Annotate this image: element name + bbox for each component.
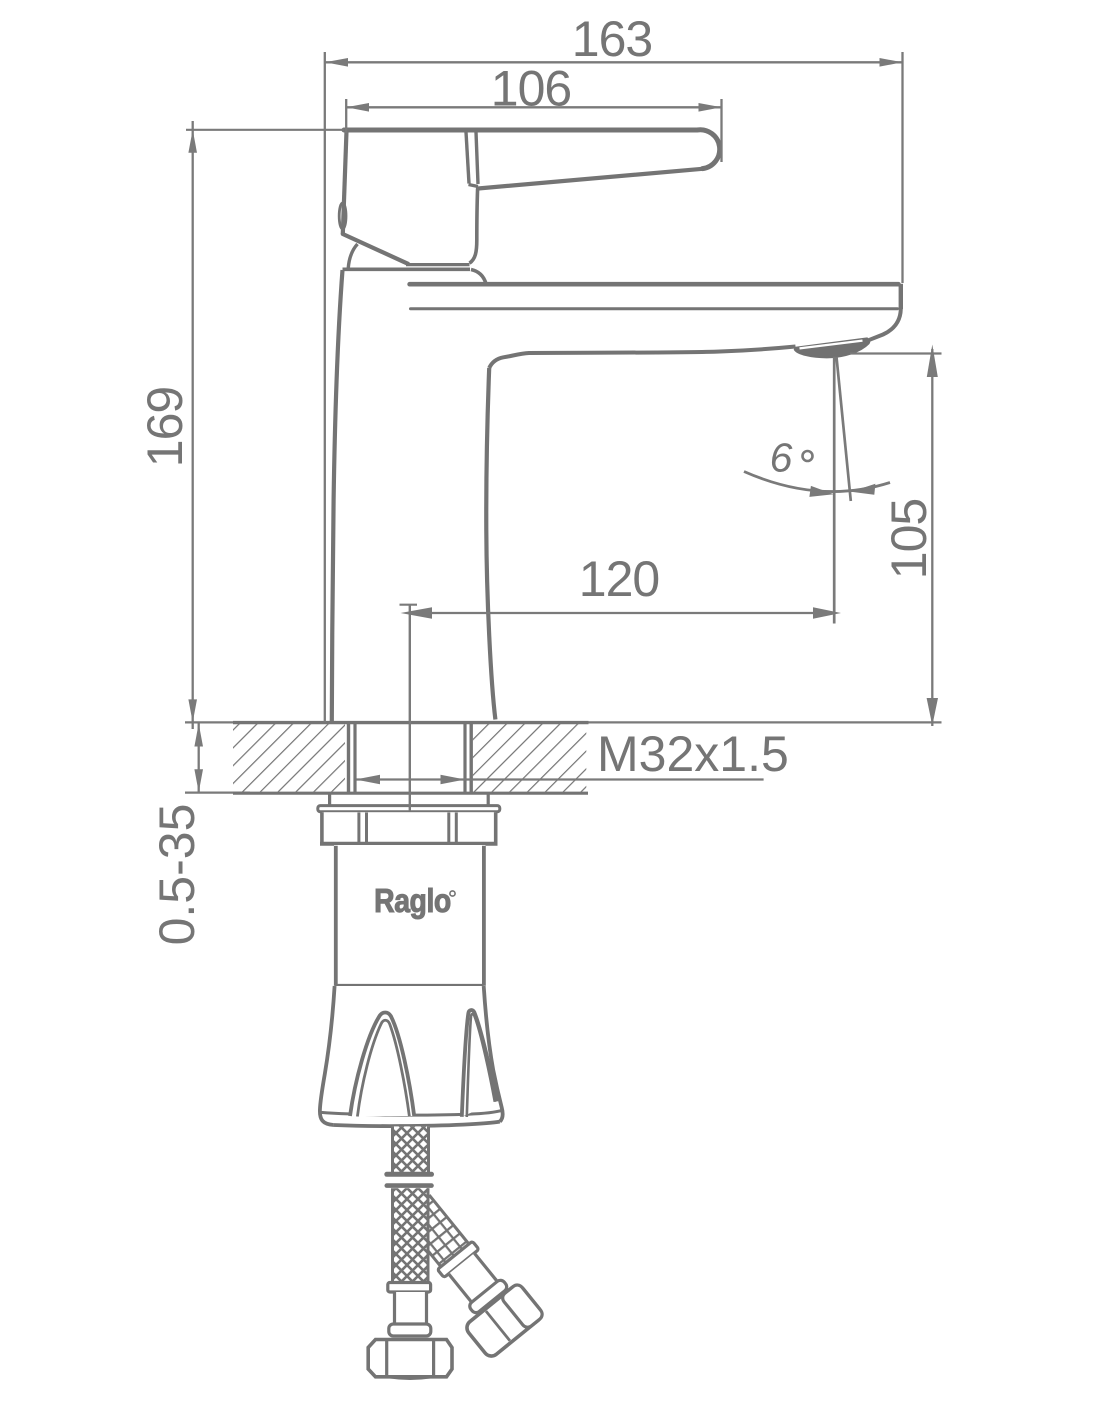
svg-text:169: 169 (137, 387, 193, 467)
svg-text:106: 106 (491, 61, 571, 117)
svg-text:0.5-35: 0.5-35 (149, 804, 205, 946)
svg-text:163: 163 (572, 11, 652, 67)
svg-text:Raglo: Raglo (374, 882, 451, 920)
svg-text:105: 105 (881, 499, 937, 579)
svg-text:M32x1.5: M32x1.5 (597, 726, 789, 782)
svg-text:120: 120 (579, 551, 659, 607)
svg-text:6: 6 (770, 435, 793, 481)
